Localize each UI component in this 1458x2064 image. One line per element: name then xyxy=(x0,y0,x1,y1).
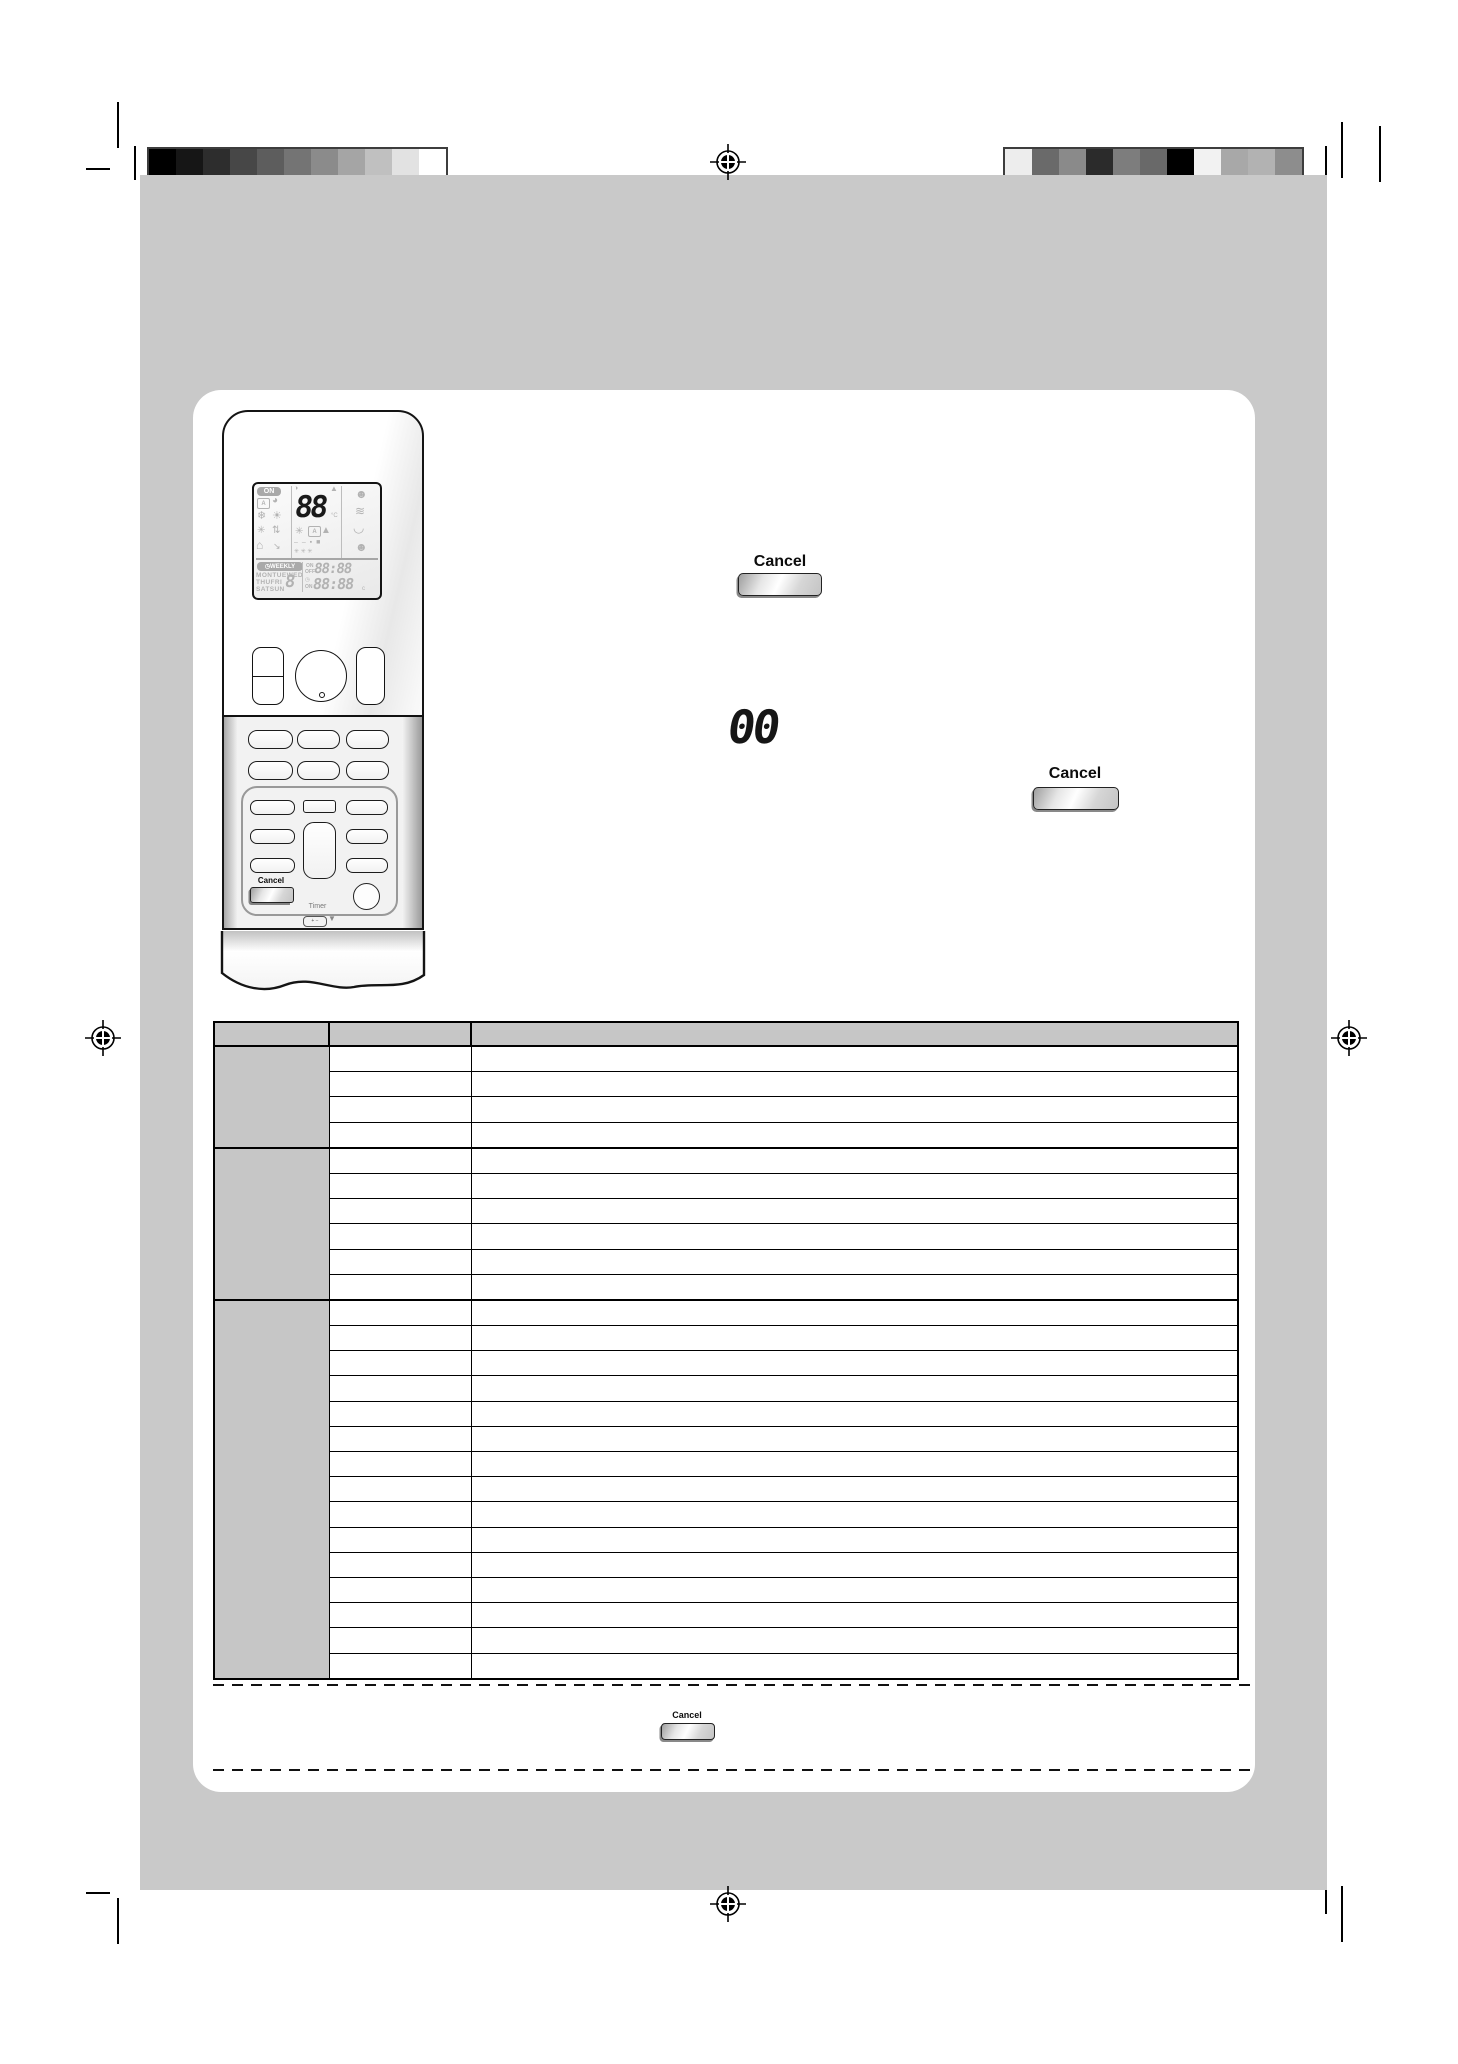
swing-flap-icon: ◡ xyxy=(353,520,364,536)
registration-mark-icon xyxy=(1331,1020,1367,1056)
table-section-cell xyxy=(214,1046,329,1148)
table-header-cell xyxy=(329,1022,471,1046)
timer-button[interactable] xyxy=(250,800,295,815)
table-row xyxy=(214,1477,1238,1502)
time-unit: c xyxy=(362,586,365,592)
table-cell xyxy=(329,1351,471,1376)
lcd-divider xyxy=(256,558,378,560)
table-cell xyxy=(471,1577,1238,1602)
note-dashed-divider-top xyxy=(213,1684,1253,1686)
remote-function-button[interactable] xyxy=(346,730,389,749)
calibration-swatch xyxy=(1194,149,1221,175)
up-triangle-icon: ▲ xyxy=(330,484,338,493)
table-cell xyxy=(471,1072,1238,1097)
table-cell xyxy=(329,1097,471,1122)
calibration-swatch xyxy=(1221,149,1248,175)
table-cell xyxy=(471,1249,1238,1274)
display-readout: 00 xyxy=(724,700,781,754)
auto-fan-icon: A xyxy=(308,526,321,537)
quiet-tree-icon: ▲ xyxy=(321,525,331,536)
table-cell xyxy=(329,1173,471,1198)
note-dashed-divider-bottom xyxy=(213,1769,1253,1771)
registration-mark-icon xyxy=(710,144,746,180)
lcd-divider xyxy=(302,562,303,592)
table-cell xyxy=(329,1603,471,1628)
airflow-arrow-icon: ↘ xyxy=(273,541,281,552)
table-cell xyxy=(471,1046,1238,1072)
note-cancel-label: Cancel xyxy=(659,1710,715,1720)
calibration-swatch xyxy=(1275,149,1302,175)
table-cell xyxy=(329,1426,471,1451)
note-cancel-button[interactable] xyxy=(661,1723,715,1740)
table-cell xyxy=(329,1628,471,1653)
calibration-swatch xyxy=(176,149,203,175)
table-cell xyxy=(471,1326,1238,1351)
table-row xyxy=(214,1426,1238,1451)
timer-group-label: Timer xyxy=(290,903,345,910)
table-cell xyxy=(329,1577,471,1602)
calibration-swatch xyxy=(284,149,311,175)
updown-rocker-button[interactable] xyxy=(303,822,336,879)
table-cell xyxy=(329,1376,471,1401)
auto-mode-icon: A xyxy=(257,498,270,509)
select-button[interactable] xyxy=(303,800,336,813)
table-row xyxy=(214,1249,1238,1274)
table-cell xyxy=(329,1502,471,1527)
table-row xyxy=(214,1401,1238,1426)
remote-cancel-button[interactable] xyxy=(250,887,294,903)
step2-cancel-label: Cancel xyxy=(1033,765,1117,783)
wind-icon: ≋ xyxy=(355,504,365,518)
table-row xyxy=(214,1527,1238,1552)
remote-function-button[interactable] xyxy=(248,730,293,749)
power-button[interactable] xyxy=(295,650,347,702)
fan-level-bars: – – ▪ ■ xyxy=(294,539,321,546)
table-header xyxy=(214,1022,1238,1046)
table-row xyxy=(214,1173,1238,1198)
table-cell xyxy=(329,1527,471,1552)
crop-mark xyxy=(86,1892,110,1894)
crop-mark xyxy=(134,146,136,180)
mode-button[interactable] xyxy=(356,647,385,705)
weekly-badge: ◷WEEKLY xyxy=(257,562,303,571)
remote-function-button[interactable] xyxy=(248,761,293,780)
table-row xyxy=(214,1224,1238,1249)
crop-mark xyxy=(86,168,110,170)
table-row xyxy=(214,1097,1238,1122)
table-row xyxy=(214,1552,1238,1577)
indoor-unit-icon: ⌂ xyxy=(256,538,263,552)
table-row xyxy=(214,1603,1238,1628)
table-cell xyxy=(471,1628,1238,1653)
calibration-swatch xyxy=(203,149,230,175)
days-row-2: THUFRI xyxy=(256,579,282,586)
fan-small-icon: ✳ xyxy=(295,526,303,537)
table-cell xyxy=(471,1376,1238,1401)
table-cell xyxy=(471,1552,1238,1577)
settings-table xyxy=(213,1021,1239,1680)
crop-mark xyxy=(1379,126,1381,182)
table-cell xyxy=(329,1401,471,1426)
fan-speed-row: ✳ ✳ ✳ xyxy=(294,548,312,555)
remote-cancel-label: Cancel xyxy=(246,876,296,885)
calibration-swatch xyxy=(1167,149,1194,175)
timer-button[interactable] xyxy=(250,829,295,844)
calibration-swatch xyxy=(1140,149,1167,175)
table-row xyxy=(214,1122,1238,1148)
calibration-swatch xyxy=(257,149,284,175)
table-cell xyxy=(329,1552,471,1577)
table-row xyxy=(214,1376,1238,1401)
table-row xyxy=(214,1502,1238,1527)
days-row-3: SATSUN xyxy=(256,586,285,593)
table-cell xyxy=(471,1452,1238,1477)
table-cell xyxy=(329,1274,471,1300)
table-cell xyxy=(471,1527,1238,1552)
power-led-dot xyxy=(319,692,325,698)
temp-updown-button[interactable] xyxy=(252,647,284,705)
presence-sensor-icon: ☻ xyxy=(355,487,368,501)
dry-mode-icon: ⇅ xyxy=(272,525,280,536)
slide-rail-left xyxy=(224,717,238,928)
calibration-swatch xyxy=(338,149,365,175)
table-row xyxy=(214,1072,1238,1097)
table-cell xyxy=(471,1199,1238,1224)
comfort-icon: ◕ xyxy=(272,495,278,506)
table-cell xyxy=(471,1653,1238,1679)
table-cell xyxy=(471,1300,1238,1326)
table-cell xyxy=(471,1603,1238,1628)
calibration-swatch xyxy=(1032,149,1059,175)
registration-mark-icon xyxy=(710,1886,746,1922)
table-cell xyxy=(329,1249,471,1274)
intelligent-eye-icon: ☻ xyxy=(355,540,368,554)
cooling-icon: ❄ xyxy=(257,509,266,522)
table-cell xyxy=(471,1401,1238,1426)
table-row xyxy=(214,1452,1238,1477)
timer-button[interactable] xyxy=(346,800,388,815)
remote-lcd-display: ON ◑ ▲ 88 °C A ◕ ❄ ☀ ✳ ⇅ ⌂ ↘ ✳ A ▲ – – ▪… xyxy=(252,482,382,600)
calibration-swatch xyxy=(149,149,176,175)
temp-unit: °C xyxy=(331,513,338,519)
program-digit: 8 xyxy=(284,572,297,592)
table-row xyxy=(214,1628,1238,1653)
timer-time-bottom: 88:88 xyxy=(312,575,355,593)
remote-function-button[interactable] xyxy=(297,761,340,780)
lcd-divider xyxy=(341,486,342,558)
calibration-swatch xyxy=(1113,149,1140,175)
table-cell xyxy=(329,1653,471,1679)
calibration-swatch xyxy=(365,149,392,175)
crop-mark xyxy=(117,1898,119,1944)
slide-rail-right xyxy=(402,717,422,928)
calibration-swatch xyxy=(311,149,338,175)
clock-icon: ◷ xyxy=(305,577,310,583)
table-cell xyxy=(329,1224,471,1249)
fan-mode-icon: ✳ xyxy=(257,525,265,536)
calibration-swatch xyxy=(1005,149,1032,175)
table-header-cell xyxy=(471,1022,1238,1046)
table-cell xyxy=(471,1426,1238,1451)
table-row xyxy=(214,1148,1238,1174)
table-cell xyxy=(471,1274,1238,1300)
calibration-swatch xyxy=(1248,149,1275,175)
heating-icon: ☀ xyxy=(272,509,282,522)
table-section-cell xyxy=(214,1300,329,1679)
table-section-cell xyxy=(214,1148,329,1300)
scanned-manual-page: ON ◑ ▲ 88 °C A ◕ ❄ ☀ ✳ ⇅ ⌂ ↘ ✳ A ▲ – – ▪… xyxy=(0,0,1458,2064)
table-row xyxy=(214,1653,1238,1679)
table-header-cell xyxy=(214,1022,329,1046)
step1-cancel-button[interactable] xyxy=(738,573,822,596)
table-row xyxy=(214,1577,1238,1602)
button-divider xyxy=(253,676,283,677)
table-cell xyxy=(329,1072,471,1097)
table-cell xyxy=(471,1148,1238,1174)
table-cell xyxy=(471,1351,1238,1376)
table-cell xyxy=(329,1046,471,1072)
crop-mark xyxy=(1341,1886,1343,1942)
step2-cancel-button[interactable] xyxy=(1033,787,1119,810)
calibration-swatch xyxy=(419,149,446,175)
timer-button[interactable] xyxy=(250,858,295,873)
table-row xyxy=(214,1351,1238,1376)
remote-bottom-cap xyxy=(220,931,426,1003)
crop-mark xyxy=(1341,122,1343,178)
table-row xyxy=(214,1300,1238,1326)
table-cell xyxy=(329,1122,471,1148)
table-cell xyxy=(471,1097,1238,1122)
calibration-swatch xyxy=(1059,149,1086,175)
table-cell xyxy=(329,1300,471,1326)
grayscale-calibration-bar xyxy=(147,147,448,177)
slide-down-arrow-icon: ▼ xyxy=(328,914,336,923)
table-cell xyxy=(329,1452,471,1477)
table-row xyxy=(214,1199,1238,1224)
timer-button[interactable] xyxy=(346,829,388,844)
calibration-swatch xyxy=(1086,149,1113,175)
temperature-digits: 88 xyxy=(293,490,328,525)
table-row xyxy=(214,1046,1238,1072)
remote-function-button[interactable] xyxy=(297,730,340,749)
color-calibration-bar xyxy=(1003,147,1304,177)
table-row xyxy=(214,1274,1238,1300)
table-cell xyxy=(471,1477,1238,1502)
table-cell xyxy=(329,1148,471,1174)
battery-icon: + − xyxy=(303,916,327,927)
table-cell xyxy=(329,1199,471,1224)
crop-mark xyxy=(117,102,119,148)
table-cell xyxy=(471,1173,1238,1198)
table-cell xyxy=(471,1502,1238,1527)
table-cell xyxy=(471,1122,1238,1148)
calibration-swatch xyxy=(392,149,419,175)
table-cell xyxy=(471,1224,1238,1249)
table-cell xyxy=(329,1326,471,1351)
registration-mark-icon xyxy=(85,1020,121,1056)
calibration-swatch xyxy=(230,149,257,175)
remote-function-button[interactable] xyxy=(346,761,389,780)
table-row xyxy=(214,1326,1238,1351)
step1-cancel-label: Cancel xyxy=(738,553,822,571)
timer-button[interactable] xyxy=(346,858,388,873)
clock-set-button[interactable] xyxy=(353,883,380,910)
table-cell xyxy=(329,1477,471,1502)
